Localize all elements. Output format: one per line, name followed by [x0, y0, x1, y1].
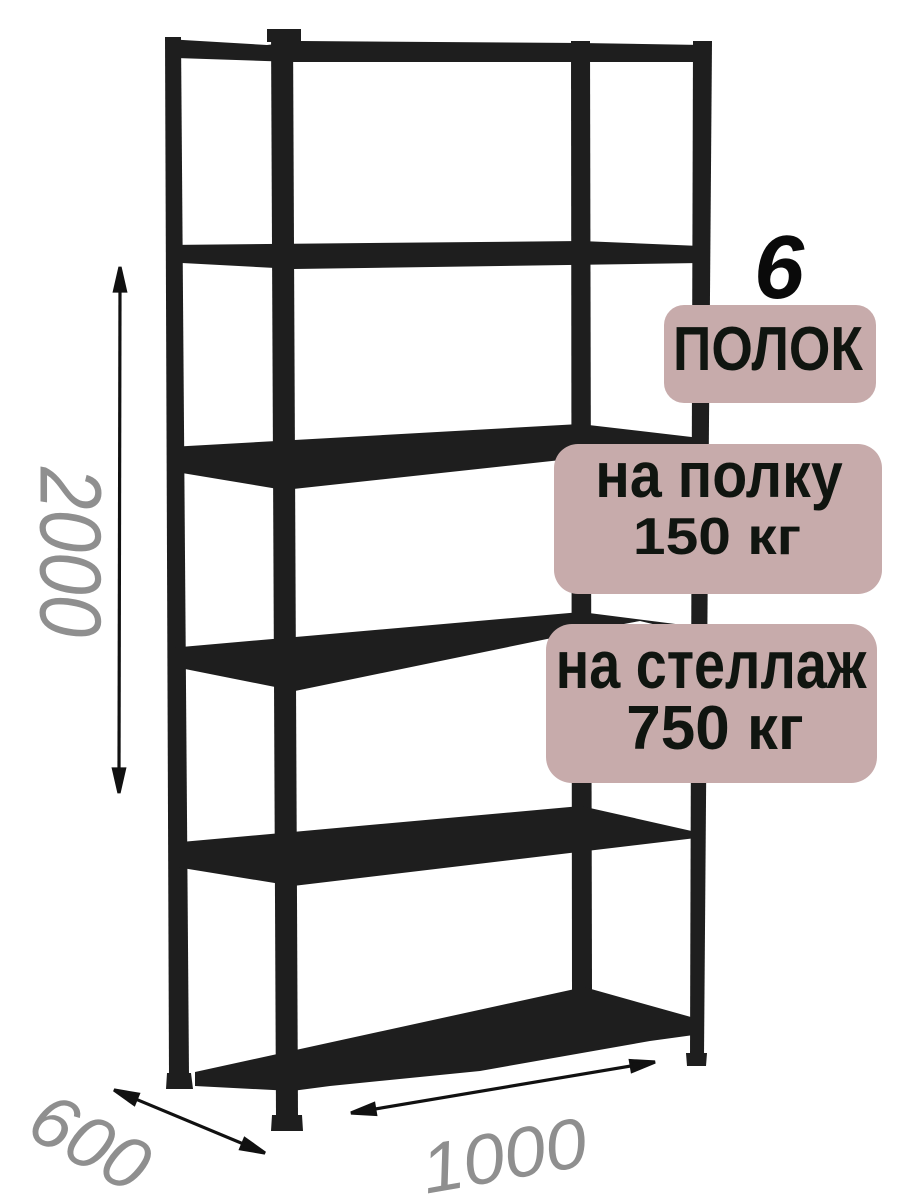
svg-text:2000: 2000 [22, 466, 119, 637]
svg-text:600: 600 [16, 1076, 164, 1200]
svg-text:150 кг: 150 кг [633, 507, 801, 565]
svg-text:6: 6 [754, 218, 805, 318]
svg-text:1000: 1000 [415, 1103, 593, 1200]
svg-text:на стеллаж: на стеллаж [556, 628, 868, 703]
svg-text:на полку: на полку [595, 439, 843, 511]
svg-text:ПОЛОК: ПОЛОК [673, 315, 864, 384]
svg-text:750 кг: 750 кг [626, 694, 804, 763]
